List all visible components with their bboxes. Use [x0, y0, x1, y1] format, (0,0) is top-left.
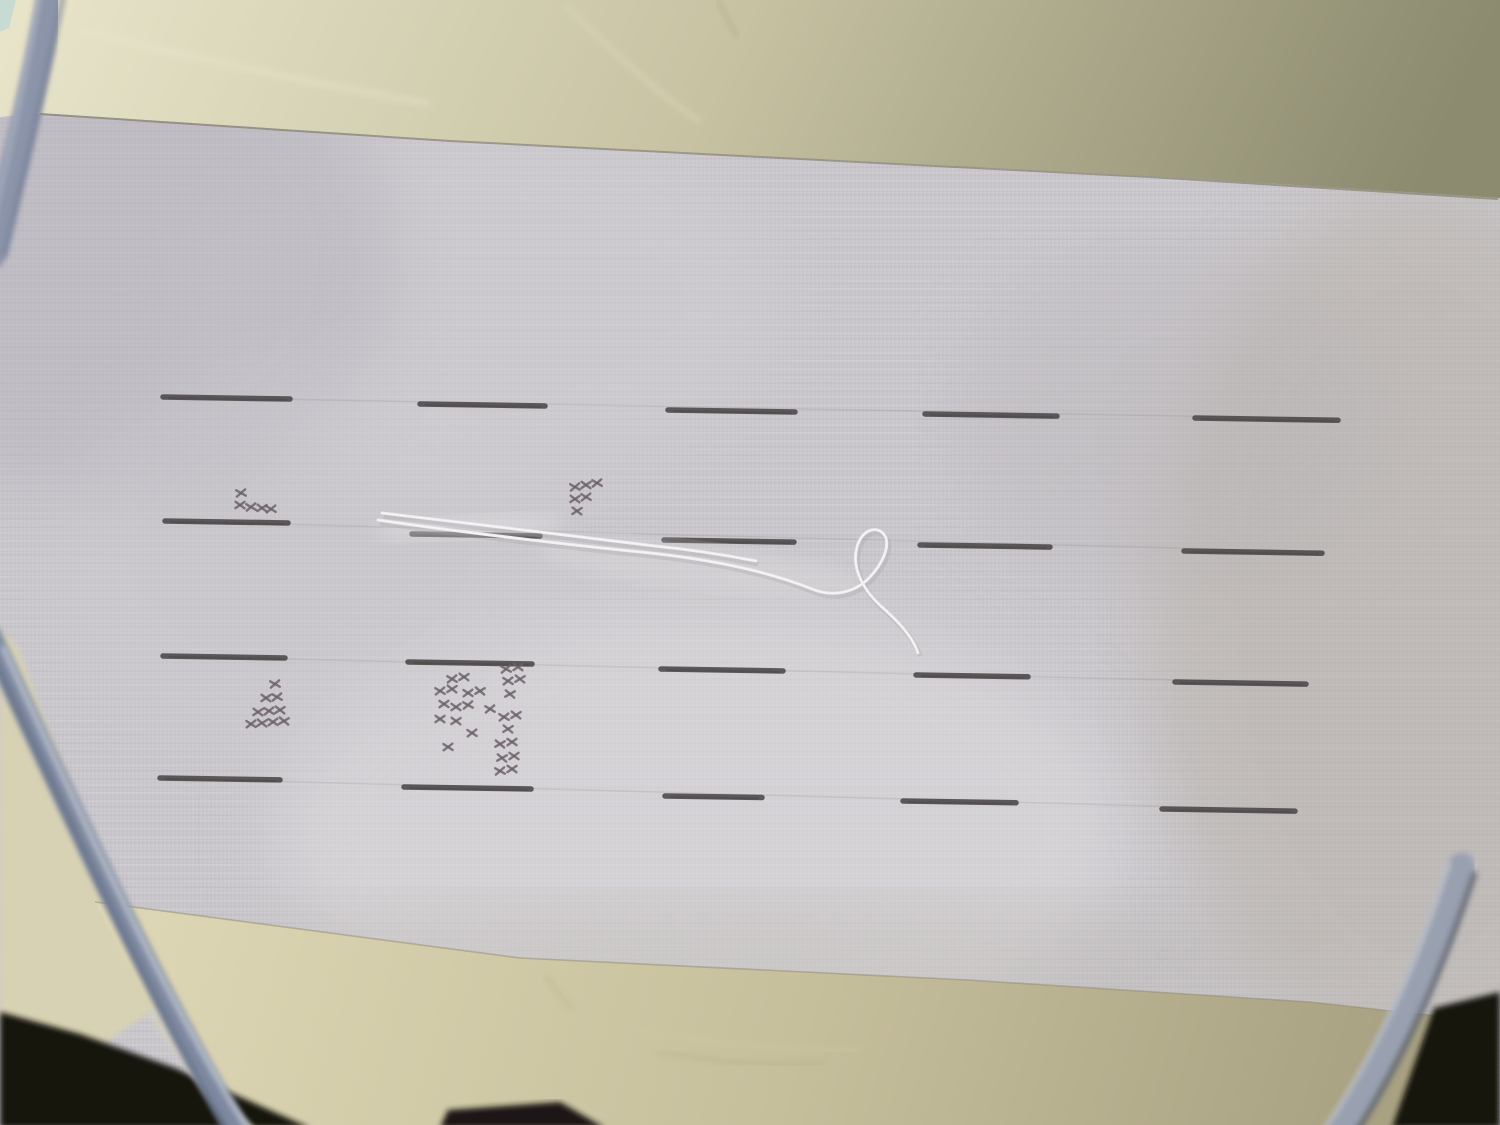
embroidery-photo-frame: [0, 0, 1500, 1125]
embroidery-photo: [0, 0, 1500, 1125]
aida-shading-patch: [40, 360, 560, 760]
